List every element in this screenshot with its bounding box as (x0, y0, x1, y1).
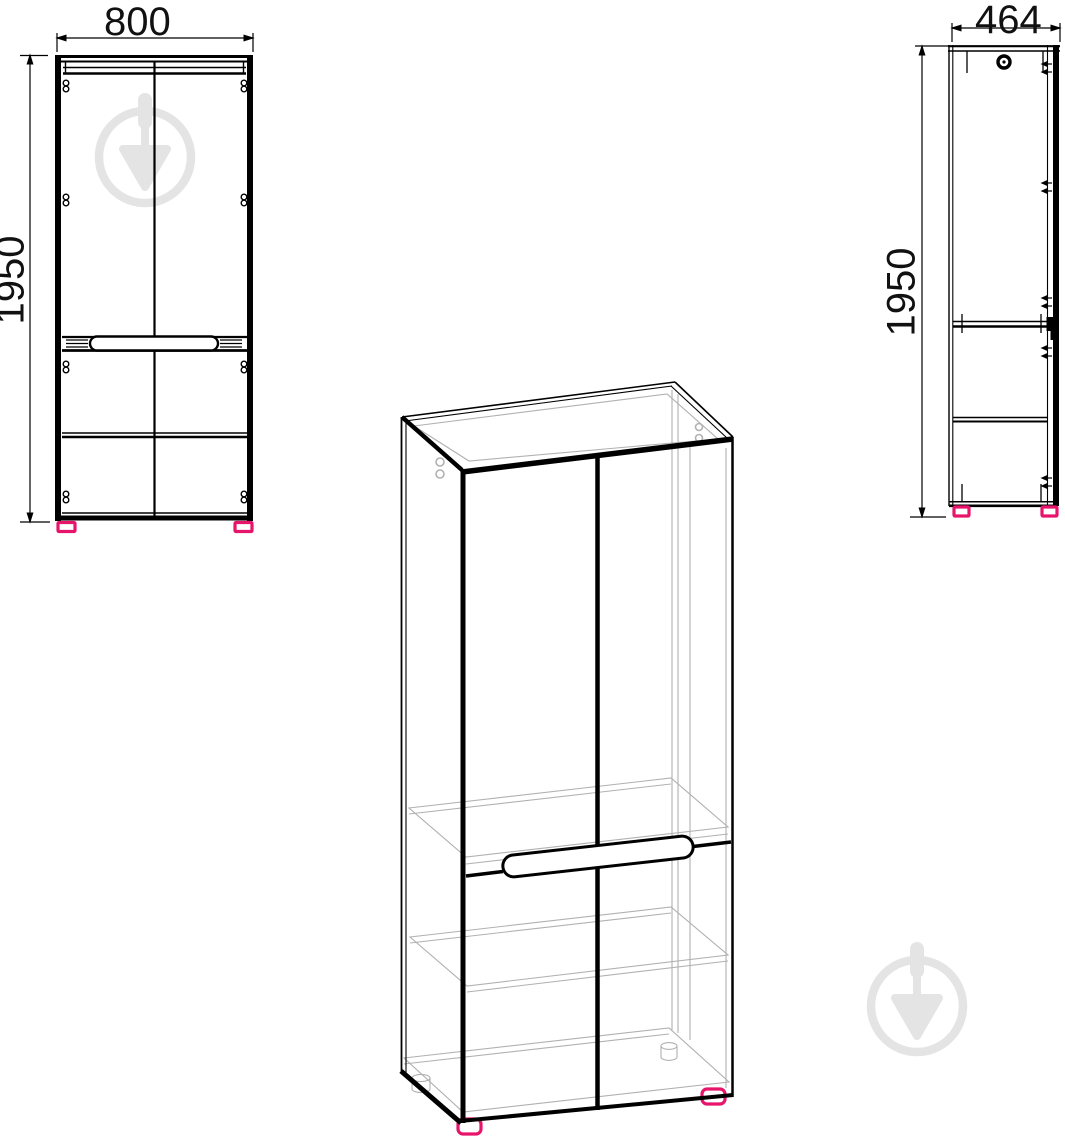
hinge-screw-icon (63, 80, 69, 92)
front-cabinet-outline (55, 55, 253, 521)
perspective-view-drawing (380, 370, 750, 1138)
side-adjustable-feet (954, 507, 1057, 516)
hinge-screw-icon (241, 361, 247, 373)
front-handle (62, 337, 247, 351)
hinge-screw-icon (241, 491, 247, 503)
hinge-screw-icon (63, 194, 69, 206)
trowel-watermark-icon (862, 938, 972, 1062)
drawing-canvas: 800 1950 (0, 0, 1065, 1138)
side-depth-dimension-label: 464 (975, 0, 1042, 40)
front-width-dimension-label: 800 (104, 2, 171, 42)
perspective-adjustable-feet (458, 1089, 725, 1134)
cam-lock-icon (998, 56, 1010, 68)
hinge-screw-icon (241, 80, 247, 92)
side-cabinet-outline (948, 45, 1060, 506)
hinge-screw-icon (241, 194, 247, 206)
hinge-screw-icon (436, 458, 444, 478)
perspective-cabinet-outline (401, 382, 733, 1123)
interior-lines (404, 390, 729, 1112)
side-height-dimension-label: 1950 (881, 248, 921, 337)
shelf-bracket (1047, 317, 1058, 340)
hinge-screw-icon (63, 361, 69, 373)
front-height-dimension-label: 1950 (0, 236, 30, 325)
front-view-drawing (0, 0, 270, 545)
foot-cylinder-icon (661, 1043, 677, 1061)
front-adjustable-feet (58, 523, 252, 532)
hinge-screw-icon (696, 424, 703, 442)
hinge-screw-icon (63, 491, 69, 503)
